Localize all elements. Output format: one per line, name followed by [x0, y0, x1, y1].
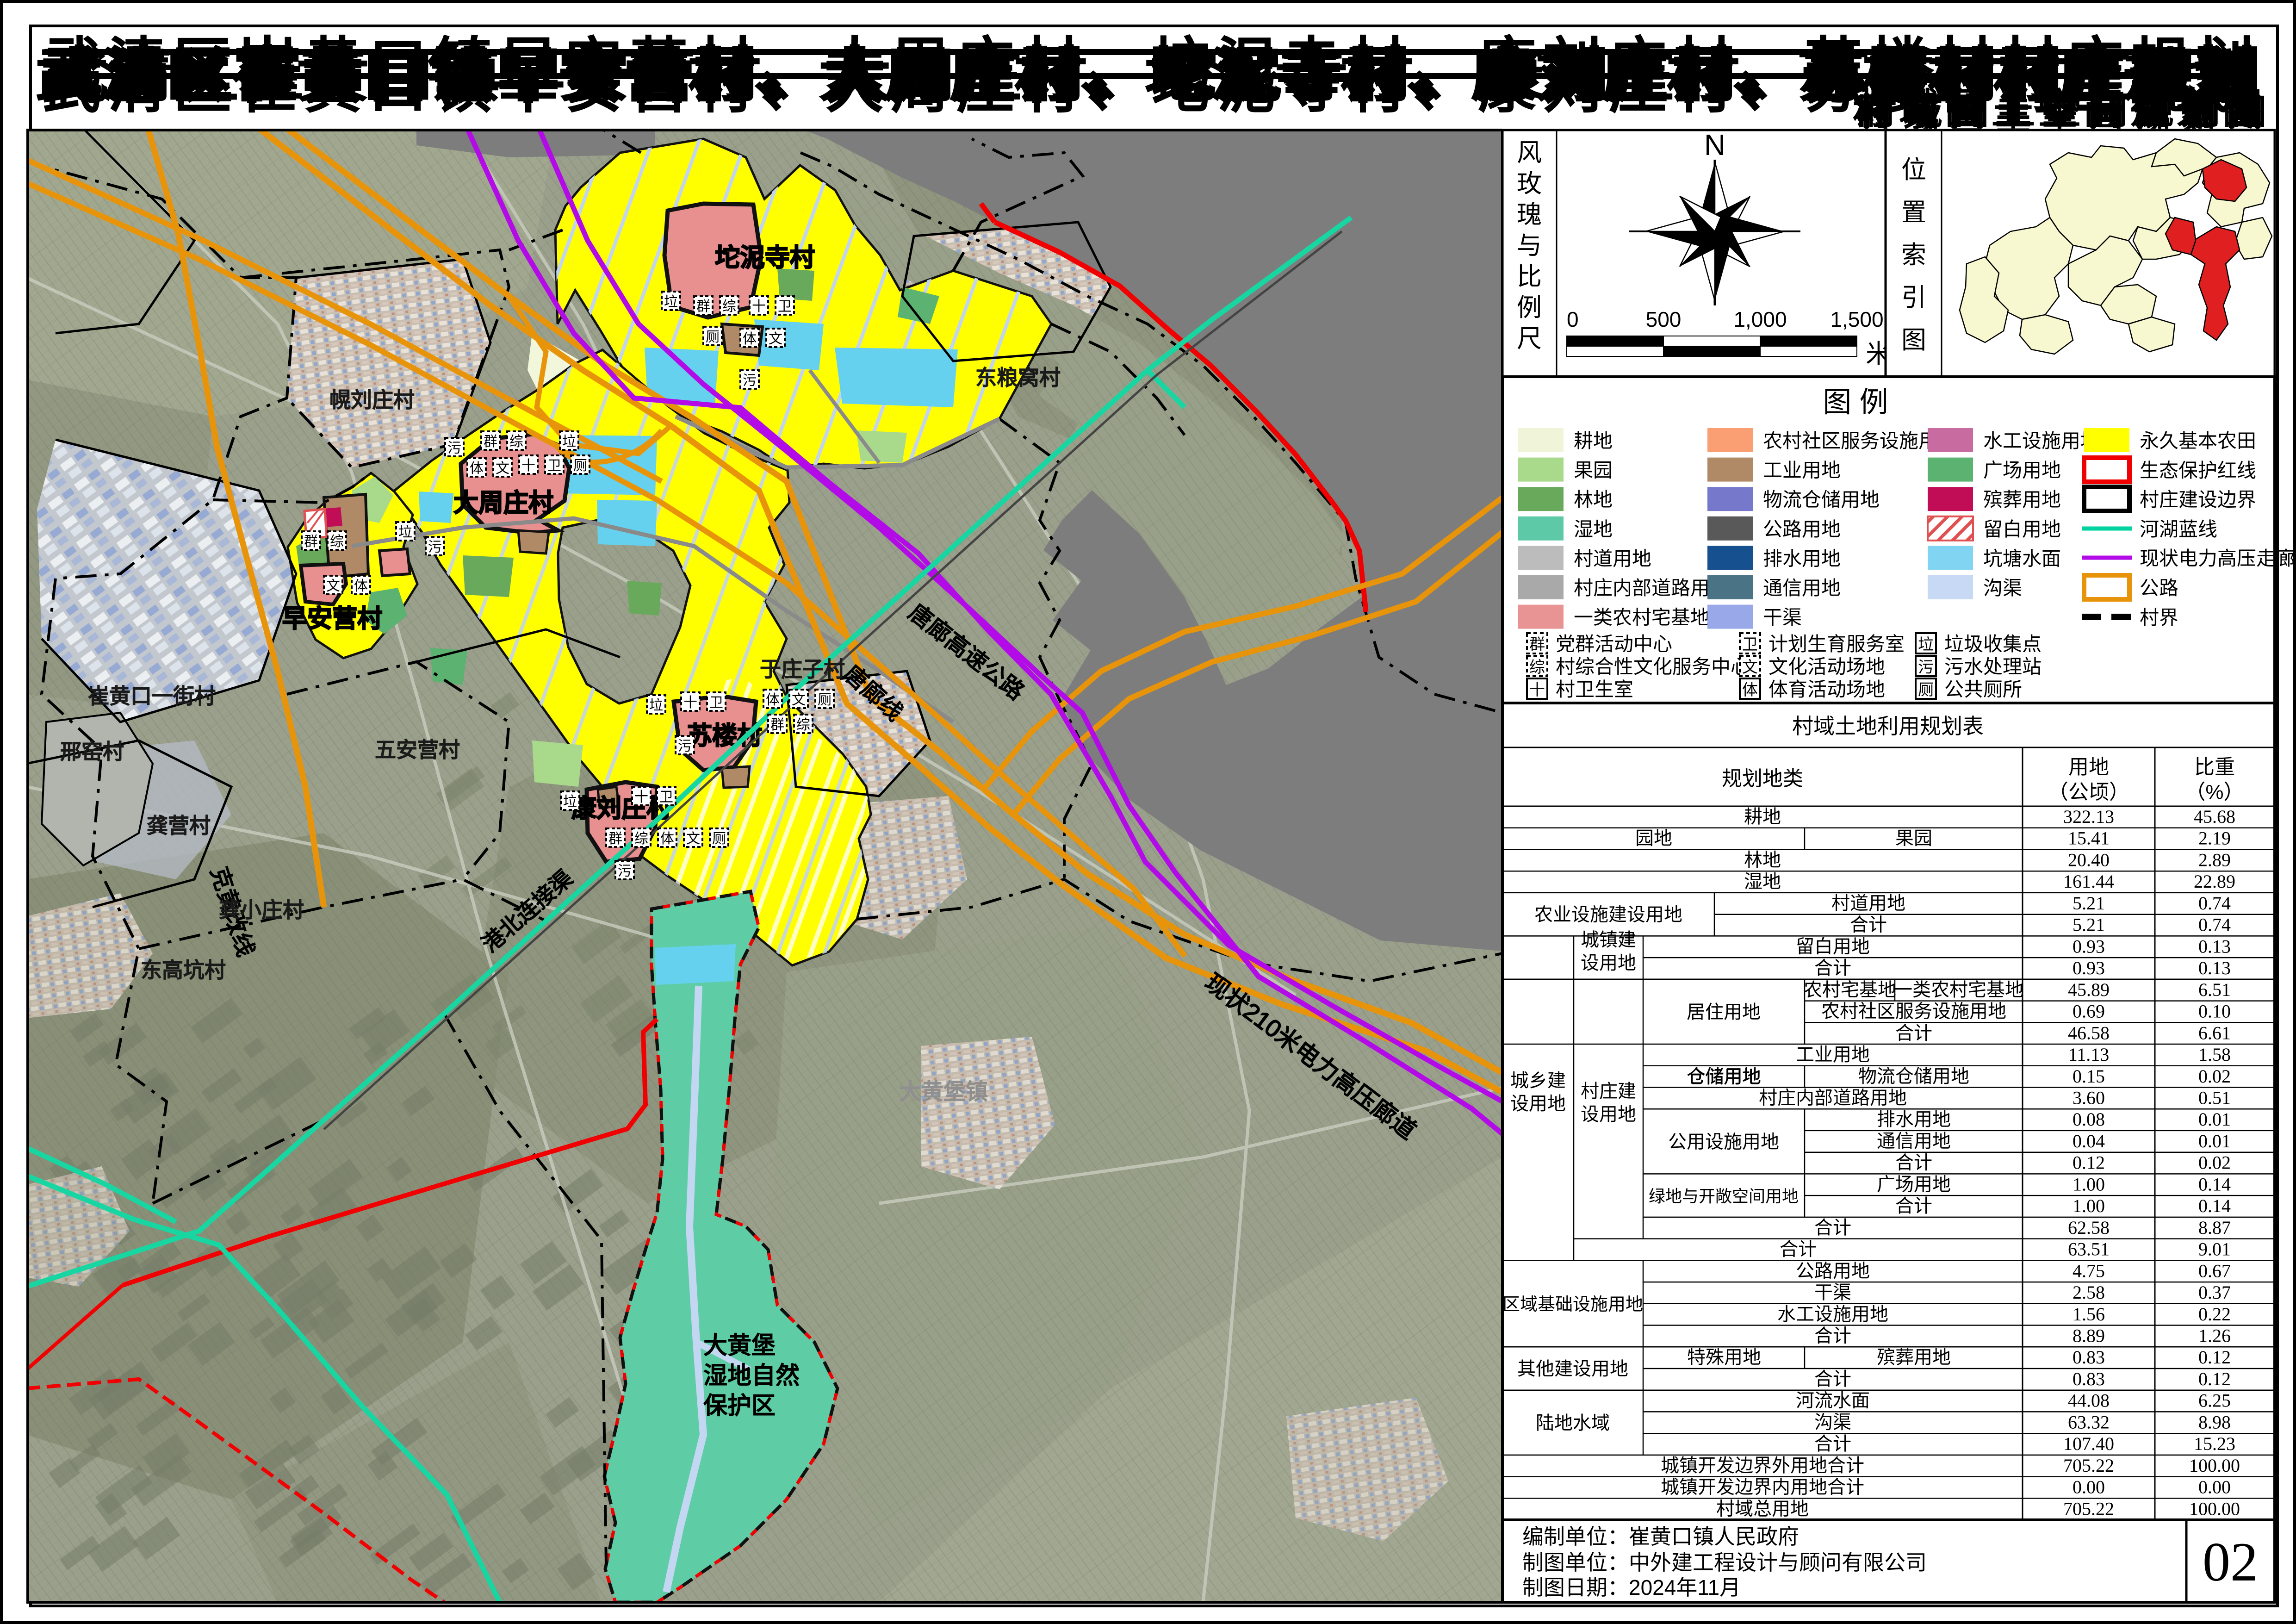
svg-text:村庄建: 村庄建: [1581, 1081, 1636, 1101]
svg-text:制图日期：2024年11月: 制图日期：2024年11月: [1522, 1575, 1741, 1599]
svg-text:0.93: 0.93: [2073, 958, 2105, 978]
svg-text:0.12: 0.12: [2073, 1152, 2105, 1173]
svg-text:体育活动场地: 体育活动场地: [1769, 678, 1885, 700]
svg-text:0.14: 0.14: [2198, 1195, 2231, 1216]
svg-text:区域基础设施用地: 区域基础设施用地: [1502, 1295, 1643, 1314]
svg-text:6.61: 6.61: [2198, 1022, 2231, 1043]
svg-text:02: 02: [2203, 1531, 2258, 1593]
svg-text:广场用地: 广场用地: [1983, 460, 2061, 481]
svg-text:0.15: 0.15: [2073, 1066, 2105, 1087]
svg-text:瑰: 瑰: [1517, 201, 1542, 229]
svg-text:城镇建: 城镇建: [1581, 930, 1636, 950]
svg-text:4.75: 4.75: [2073, 1260, 2105, 1281]
svg-text:村道用地: 村道用地: [1831, 893, 1905, 914]
svg-text:卫: 卫: [1742, 636, 1758, 653]
svg-text:厕: 厕: [1918, 681, 1934, 699]
svg-text:村庄内部道路用地: 村庄内部道路用地: [1574, 577, 1729, 599]
svg-text:生态保护红线: 生态保护红线: [2140, 460, 2256, 481]
svg-text:村庄建设边界: 村庄建设边界: [2140, 489, 2256, 510]
svg-text:果园: 果园: [1895, 828, 1932, 849]
svg-text:107.40: 107.40: [2063, 1433, 2114, 1454]
svg-text:河湖蓝线: 河湖蓝线: [2140, 518, 2217, 540]
svg-text:（公顷）: （公顷）: [2048, 781, 2129, 803]
svg-text:绿地与开敞空间用地: 绿地与开敞空间用地: [1649, 1187, 1799, 1206]
svg-text:引: 引: [1901, 284, 1926, 311]
svg-text:6.51: 6.51: [2198, 979, 2231, 1000]
svg-text:水工设施用地: 水工设施用地: [1777, 1304, 1888, 1325]
svg-text:沟渠: 沟渠: [1983, 577, 2022, 599]
svg-text:63.32: 63.32: [2068, 1412, 2110, 1432]
svg-text:1.58: 1.58: [2198, 1044, 2231, 1065]
svg-text:村庄内部道路用地: 村庄内部道路用地: [1759, 1088, 1907, 1108]
svg-text:位: 位: [1901, 156, 1926, 184]
svg-text:1.00: 1.00: [2073, 1195, 2105, 1216]
svg-text:图 例: 图 例: [1823, 386, 1888, 418]
svg-text:其他建设用地: 其他建设用地: [1517, 1359, 1628, 1379]
svg-text:705.22: 705.22: [2063, 1498, 2114, 1519]
svg-text:161.44: 161.44: [2063, 871, 2114, 892]
svg-text:村域土地利用规划表: 村域土地利用规划表: [1792, 714, 1984, 738]
svg-text:0.01: 0.01: [2198, 1131, 2231, 1151]
svg-text:0.00: 0.00: [2073, 1477, 2105, 1498]
svg-text:0.22: 0.22: [2198, 1304, 2231, 1325]
svg-text:（%）: （%）: [2185, 781, 2244, 803]
svg-text:705.22: 705.22: [2063, 1455, 2114, 1476]
svg-text:44.08: 44.08: [2068, 1390, 2110, 1411]
svg-text:100.00: 100.00: [2189, 1455, 2240, 1476]
svg-text:合计: 合计: [1814, 958, 1851, 978]
svg-text:果园: 果园: [1574, 460, 1613, 481]
svg-text:2.19: 2.19: [2198, 828, 2231, 849]
svg-text:村域总用地: 村域总用地: [1716, 1499, 1809, 1519]
svg-text:2.58: 2.58: [2073, 1282, 2105, 1303]
svg-text:尺: 尺: [1517, 325, 1542, 353]
svg-text:干渠: 干渠: [1763, 607, 1802, 628]
svg-text:合计: 合计: [1814, 1434, 1851, 1454]
svg-text:留白用地: 留白用地: [1796, 936, 1870, 957]
svg-text:0.93: 0.93: [2073, 936, 2105, 957]
svg-text:编制单位：崔黄口镇人民政府: 编制单位：崔黄口镇人民政府: [1522, 1524, 1799, 1549]
svg-text:0.67: 0.67: [2198, 1260, 2231, 1281]
svg-text:0.12: 0.12: [2198, 1369, 2231, 1389]
svg-text:一类农村宅基地: 一类农村宅基地: [1574, 607, 1710, 628]
svg-text:1,500: 1,500: [1830, 307, 1883, 331]
svg-text:合计: 合计: [1814, 1326, 1851, 1346]
svg-text:湿地: 湿地: [1574, 518, 1613, 540]
svg-text:文化活动场地: 文化活动场地: [1769, 656, 1885, 678]
svg-text:8.98: 8.98: [2198, 1412, 2231, 1432]
svg-text:群: 群: [1529, 636, 1545, 653]
svg-text:1.56: 1.56: [2073, 1304, 2105, 1325]
svg-text:用地: 用地: [2068, 756, 2109, 778]
svg-text:20.40: 20.40: [2068, 850, 2110, 871]
svg-text:设用地: 设用地: [1510, 1094, 1566, 1114]
svg-text:沟渠: 沟渠: [1814, 1412, 1851, 1432]
svg-text:0.01: 0.01: [2198, 1109, 2231, 1130]
svg-text:15.41: 15.41: [2068, 828, 2110, 849]
svg-text:城镇开发边界内用地合计: 城镇开发边界内用地合计: [1661, 1477, 1864, 1498]
svg-text:0: 0: [1567, 307, 1579, 331]
svg-text:0.10: 0.10: [2198, 1001, 2231, 1022]
svg-text:100.00: 100.00: [2189, 1498, 2240, 1519]
svg-text:园地: 园地: [1635, 828, 1672, 849]
svg-text:1.00: 1.00: [2073, 1174, 2105, 1195]
svg-text:6.25: 6.25: [2198, 1390, 2231, 1411]
svg-text:水工设施用地: 水工设施用地: [1983, 430, 2100, 452]
svg-text:0.37: 0.37: [2198, 1282, 2231, 1303]
svg-text:0.00: 0.00: [2198, 1477, 2231, 1498]
svg-text:0.13: 0.13: [2198, 958, 2231, 978]
svg-text:0.13: 0.13: [2198, 936, 2231, 957]
svg-text:十: 十: [1529, 681, 1545, 699]
svg-text:物流仓储用地: 物流仓储用地: [1858, 1066, 1969, 1087]
svg-text:9.01: 9.01: [2198, 1239, 2231, 1260]
svg-text:0.69: 0.69: [2073, 1001, 2105, 1022]
svg-text:陆地水域: 陆地水域: [1536, 1413, 1610, 1433]
svg-text:1.26: 1.26: [2198, 1325, 2231, 1346]
svg-text:工业用地: 工业用地: [1763, 460, 1841, 481]
svg-text:合计: 合计: [1895, 1196, 1932, 1216]
svg-text:3.60: 3.60: [2073, 1088, 2105, 1108]
svg-text:干渠: 干渠: [1814, 1282, 1851, 1303]
svg-text:比重: 比重: [2194, 756, 2235, 778]
svg-text:公路: 公路: [2140, 577, 2178, 599]
svg-text:农村社区服务设施用地: 农村社区服务设施用地: [1821, 1002, 2006, 1022]
svg-text:例: 例: [1517, 294, 1542, 322]
svg-text:15.23: 15.23: [2194, 1433, 2235, 1454]
svg-text:0.04: 0.04: [2073, 1131, 2105, 1151]
svg-text:河流水面: 河流水面: [1796, 1391, 1870, 1411]
svg-text:工业用地: 工业用地: [1796, 1045, 1870, 1065]
svg-text:合计: 合计: [1850, 915, 1887, 935]
svg-text:城镇开发边界外用地合计: 城镇开发边界外用地合计: [1661, 1456, 1864, 1476]
svg-text:N: N: [1704, 128, 1725, 162]
svg-text:湿地: 湿地: [1744, 871, 1781, 892]
svg-text:村道用地: 村道用地: [1574, 548, 1651, 569]
svg-text:通信用地: 通信用地: [1763, 577, 1841, 599]
svg-text:通信用地: 通信用地: [1877, 1131, 1951, 1151]
svg-text:公共厕所: 公共厕所: [1944, 678, 2022, 700]
svg-text:5.21: 5.21: [2073, 893, 2105, 914]
svg-text:设用地: 设用地: [1581, 1104, 1636, 1125]
svg-text:公路用地: 公路用地: [1763, 518, 1841, 540]
svg-text:索: 索: [1901, 241, 1926, 269]
svg-text:制图单位：中外建工程设计与顾问有限公司: 制图单位：中外建工程设计与顾问有限公司: [1522, 1550, 1927, 1574]
svg-text:留白用地: 留白用地: [1983, 518, 2061, 540]
svg-text:63.51: 63.51: [2068, 1239, 2110, 1260]
svg-text:与: 与: [1517, 232, 1542, 260]
svg-text:物流仓储用地: 物流仓储用地: [1763, 489, 1880, 510]
svg-text:0.83: 0.83: [2073, 1369, 2105, 1389]
svg-text:林地: 林地: [1744, 850, 1781, 871]
svg-text:0.12: 0.12: [2198, 1347, 2231, 1368]
svg-text:林地: 林地: [1574, 489, 1613, 510]
svg-text:45.89: 45.89: [2068, 979, 2110, 1000]
svg-text:玫: 玫: [1517, 170, 1542, 198]
svg-text:0.74: 0.74: [2198, 915, 2231, 935]
svg-text:仓储用地: 仓储用地: [1687, 1067, 1761, 1087]
svg-text:耕地: 耕地: [1744, 807, 1781, 827]
svg-text:村综合性文化服务中心: 村综合性文化服务中心: [1556, 656, 1750, 678]
svg-text:比: 比: [1517, 263, 1542, 291]
svg-text:农村宅基地: 农村宅基地: [1804, 980, 1896, 1000]
svg-text:公路用地: 公路用地: [1796, 1261, 1870, 1281]
svg-text:排水用地: 排水用地: [1877, 1109, 1951, 1130]
svg-text:8.87: 8.87: [2198, 1217, 2231, 1238]
svg-text:排水用地: 排水用地: [1763, 548, 1841, 569]
svg-text:62.58: 62.58: [2068, 1217, 2110, 1238]
svg-text:0.02: 0.02: [2198, 1152, 2231, 1173]
svg-text:殡葬用地: 殡葬用地: [1877, 1347, 1951, 1368]
svg-text:特殊用地: 特殊用地: [1687, 1347, 1761, 1368]
svg-text:居住用地: 居住用地: [1687, 1002, 1761, 1022]
svg-text:综: 综: [1529, 659, 1545, 676]
svg-text:垃: 垃: [1918, 636, 1934, 653]
svg-text:体: 体: [1742, 681, 1758, 699]
svg-text:规划地类: 规划地类: [1722, 767, 1803, 790]
svg-text:村卫生室: 村卫生室: [1556, 678, 1633, 700]
svg-text:文: 文: [1742, 659, 1758, 676]
svg-text:现状电力高压走廊: 现状电力高压走廊: [2140, 548, 2295, 569]
svg-text:合计: 合计: [1895, 1023, 1932, 1043]
svg-text:永久基本农田: 永久基本农田: [2140, 430, 2256, 452]
svg-text:22.89: 22.89: [2194, 871, 2235, 892]
svg-text:0.51: 0.51: [2198, 1088, 2231, 1108]
svg-text:图: 图: [1901, 326, 1926, 354]
svg-text:0.02: 0.02: [2198, 1066, 2231, 1087]
svg-text:坑塘水面: 坑塘水面: [1983, 548, 2061, 569]
svg-text:计划生育服务室: 计划生育服务室: [1769, 633, 1905, 655]
svg-text:1,000: 1,000: [1733, 307, 1787, 331]
svg-text:置: 置: [1901, 199, 1926, 226]
svg-text:村界: 村界: [2140, 607, 2178, 628]
svg-text:8.89: 8.89: [2073, 1325, 2105, 1346]
svg-text:11.13: 11.13: [2068, 1044, 2110, 1065]
svg-text:污水处理站: 污水处理站: [1944, 656, 2042, 678]
svg-text:0.14: 0.14: [2198, 1174, 2231, 1195]
svg-text:0.08: 0.08: [2073, 1109, 2105, 1130]
svg-text:垃圾收集点: 垃圾收集点: [1944, 633, 2042, 655]
svg-text:500: 500: [1646, 307, 1682, 331]
svg-text:城乡建: 城乡建: [1510, 1070, 1566, 1091]
svg-text:污: 污: [1918, 659, 1934, 676]
svg-text:耕地: 耕地: [1574, 430, 1613, 452]
svg-text:0.83: 0.83: [2073, 1347, 2105, 1368]
svg-text:45.68: 45.68: [2194, 806, 2235, 827]
svg-text:设用地: 设用地: [1581, 953, 1636, 973]
svg-text:合计: 合计: [1780, 1239, 1817, 1260]
svg-text:46.58: 46.58: [2068, 1022, 2110, 1043]
svg-text:322.13: 322.13: [2063, 806, 2114, 827]
svg-text:0.74: 0.74: [2198, 893, 2231, 914]
svg-text:一类农村宅基地: 一类农村宅基地: [1894, 980, 2023, 1000]
svg-text:殡葬用地: 殡葬用地: [1983, 489, 2061, 510]
svg-text:公用设施用地: 公用设施用地: [1668, 1132, 1779, 1152]
svg-text:广场用地: 广场用地: [1877, 1174, 1951, 1195]
svg-text:党群活动中心: 党群活动中心: [1556, 633, 1672, 655]
svg-text:合计: 合计: [1895, 1153, 1932, 1173]
svg-text:农业设施建设用地: 农业设施建设用地: [1534, 905, 1682, 925]
svg-text:5.21: 5.21: [2073, 915, 2105, 935]
svg-text:2.89: 2.89: [2198, 850, 2231, 871]
svg-text:合计: 合计: [1814, 1218, 1851, 1238]
svg-text:合计: 合计: [1814, 1369, 1851, 1389]
svg-text:风: 风: [1517, 139, 1542, 167]
